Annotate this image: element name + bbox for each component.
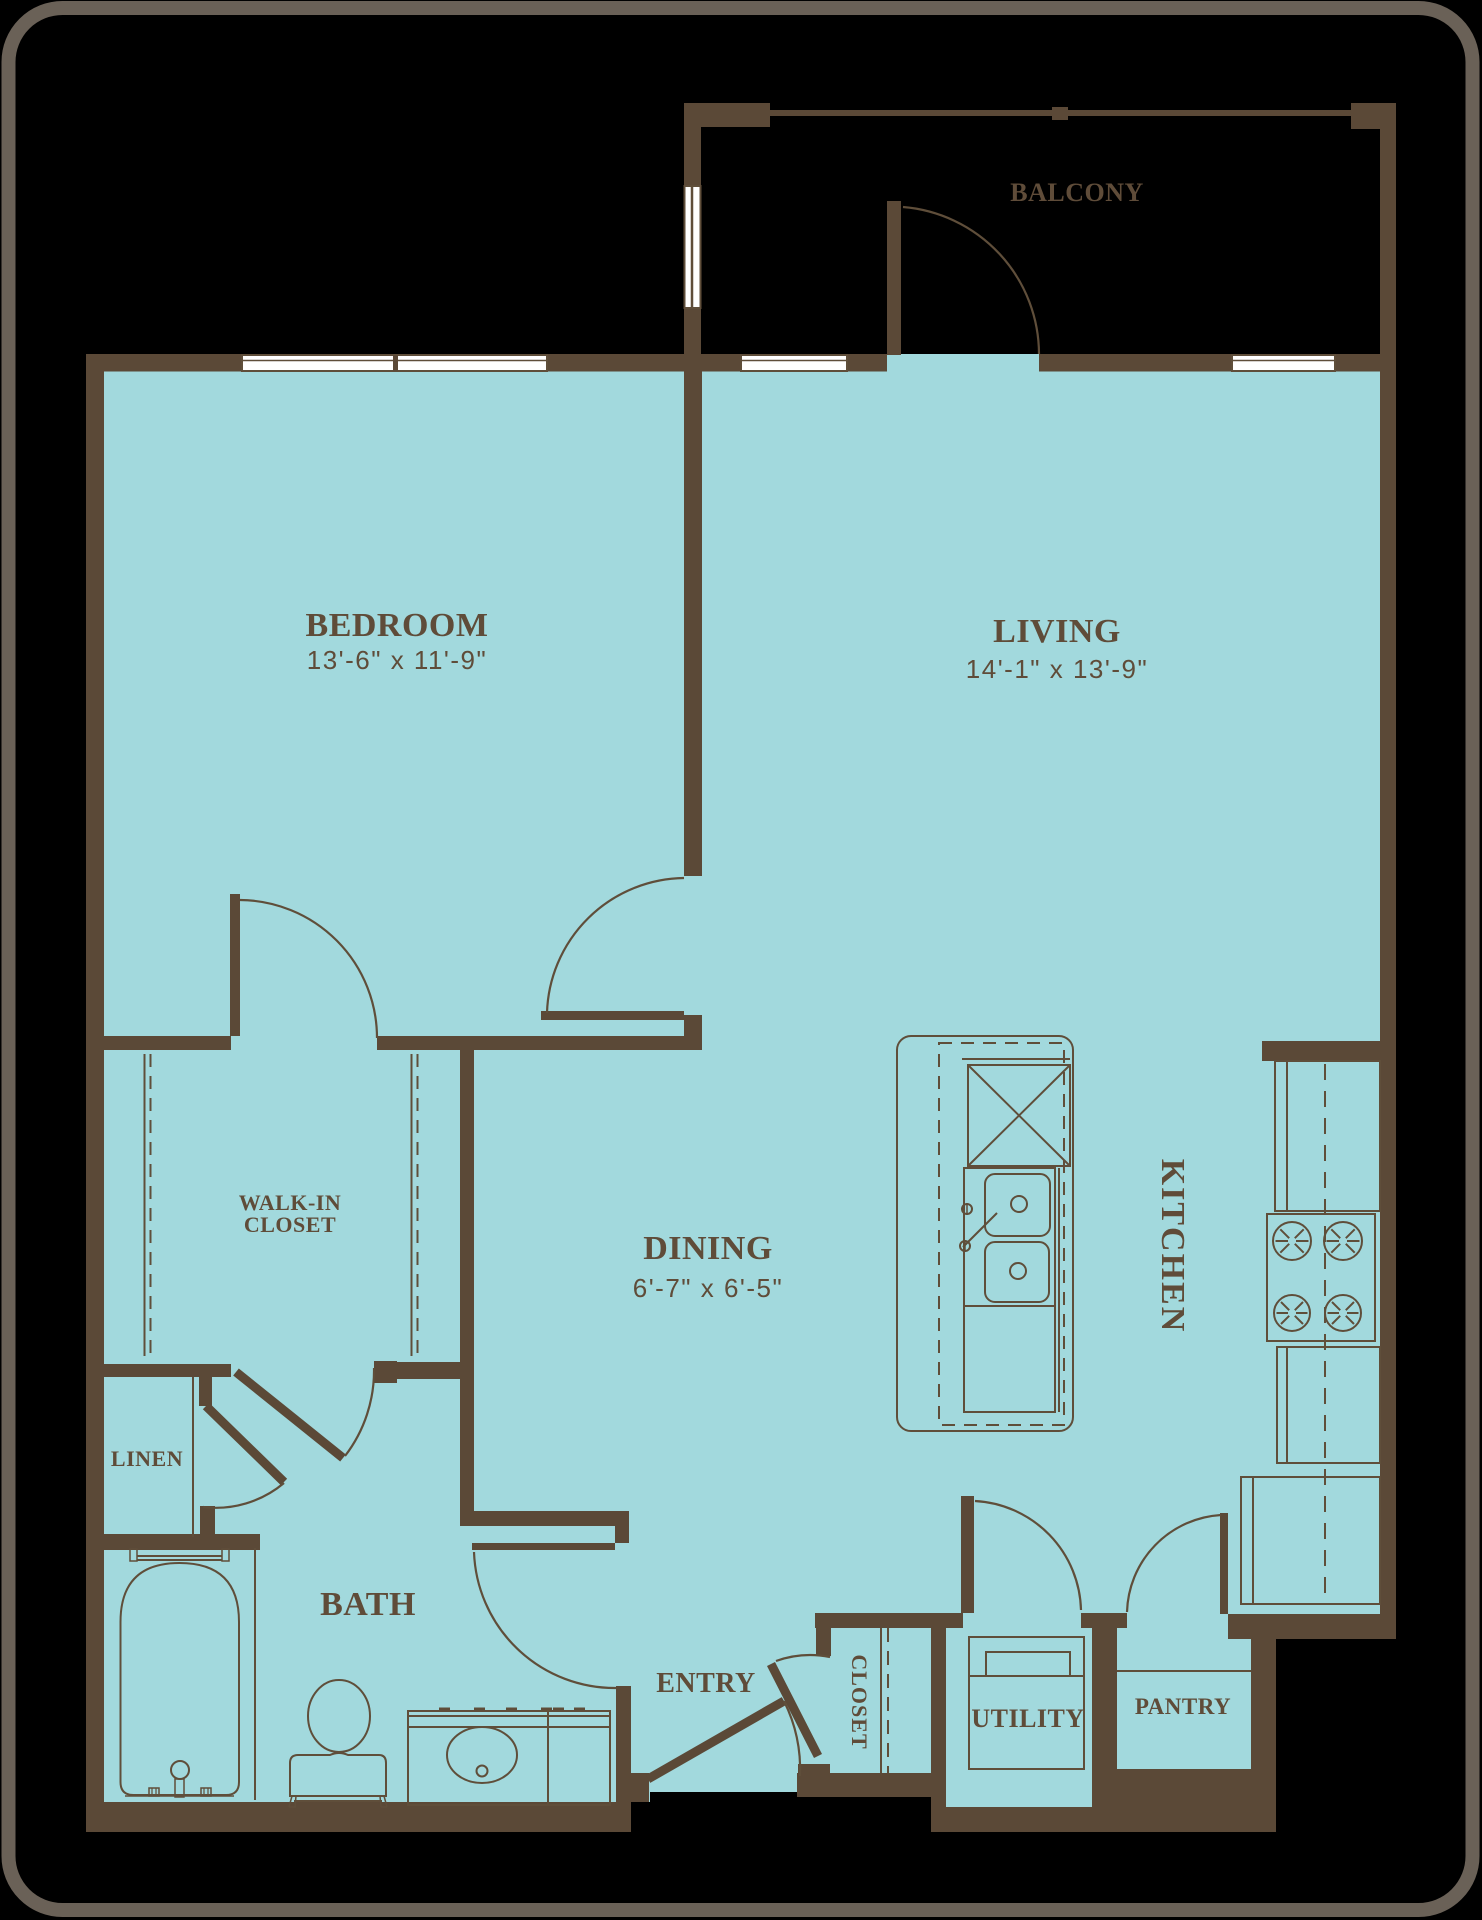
svg-text:CLOSET: CLOSET bbox=[244, 1212, 336, 1237]
svg-text:BATH: BATH bbox=[320, 1586, 416, 1623]
svg-text:BEDROOM: BEDROOM bbox=[306, 607, 489, 644]
svg-text:13'-6" x 11'-9": 13'-6" x 11'-9" bbox=[307, 645, 487, 675]
svg-text:UTILITY: UTILITY bbox=[971, 1704, 1084, 1733]
svg-text:ENTRY: ENTRY bbox=[656, 1668, 756, 1699]
svg-text:CLOSET: CLOSET bbox=[847, 1654, 872, 1749]
svg-text:6'-7" x 6'-5": 6'-7" x 6'-5" bbox=[633, 1273, 784, 1303]
svg-text:KITCHEN: KITCHEN bbox=[1154, 1159, 1191, 1334]
svg-text:PANTRY: PANTRY bbox=[1135, 1694, 1231, 1719]
svg-text:14'-1" x 13'-9": 14'-1" x 13'-9" bbox=[966, 654, 1148, 684]
svg-text:LIVING: LIVING bbox=[993, 613, 1121, 650]
svg-text:LINEN: LINEN bbox=[111, 1446, 183, 1471]
svg-text:BALCONY: BALCONY bbox=[1010, 178, 1144, 207]
svg-text:DINING: DINING bbox=[643, 1230, 773, 1267]
